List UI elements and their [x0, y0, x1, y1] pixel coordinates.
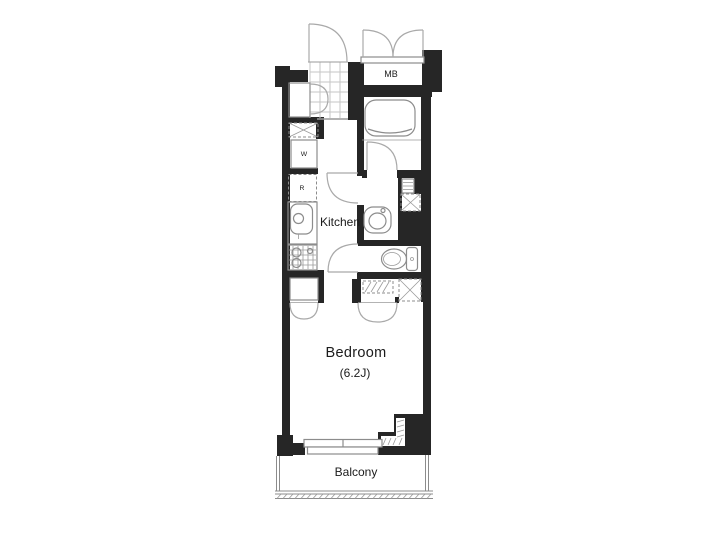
washbasin — [364, 207, 391, 233]
storage-box-bedroom — [399, 279, 421, 301]
bedroom-size-label: (6.2J) — [340, 366, 371, 380]
toilet-room — [328, 244, 418, 272]
kitchen-label: Kitchen — [320, 215, 360, 229]
entry-door — [309, 24, 347, 62]
refrigerator-space-label: R — [300, 185, 305, 192]
shoe-storage-box — [289, 123, 318, 137]
floor-plan: MB — [0, 0, 720, 540]
linen-shelf — [402, 179, 414, 193]
bathroom-door — [367, 142, 397, 170]
balcony-edge-hatch — [275, 491, 433, 499]
floor-plan-page: MB — [0, 0, 720, 540]
meter-box-label: MB — [384, 69, 398, 79]
washer-space-label: W — [301, 151, 308, 158]
entry-tiles — [310, 62, 348, 118]
bedroom-closet-left — [290, 278, 318, 319]
bedroom-label: Bedroom — [326, 345, 387, 361]
storage-box-washroom — [401, 194, 420, 211]
balcony-label: Balcony — [335, 465, 378, 479]
meter-box: MB — [361, 30, 424, 79]
kitchen-sink — [288, 202, 317, 244]
washer-space: W — [291, 140, 317, 168]
refrigerator-space: R — [289, 175, 317, 202]
gas-stove — [288, 245, 317, 270]
toilet — [382, 248, 418, 271]
bedroom-window — [304, 440, 382, 455]
washroom-door — [327, 173, 358, 203]
balcony: Balcony — [275, 455, 433, 499]
bathroom — [362, 100, 421, 170]
entry-closet — [289, 83, 328, 117]
toilet-door — [328, 244, 358, 272]
meter-box-doors — [363, 30, 423, 57]
bedroom-closet-middle — [358, 281, 397, 322]
pipe-space — [398, 211, 431, 240]
